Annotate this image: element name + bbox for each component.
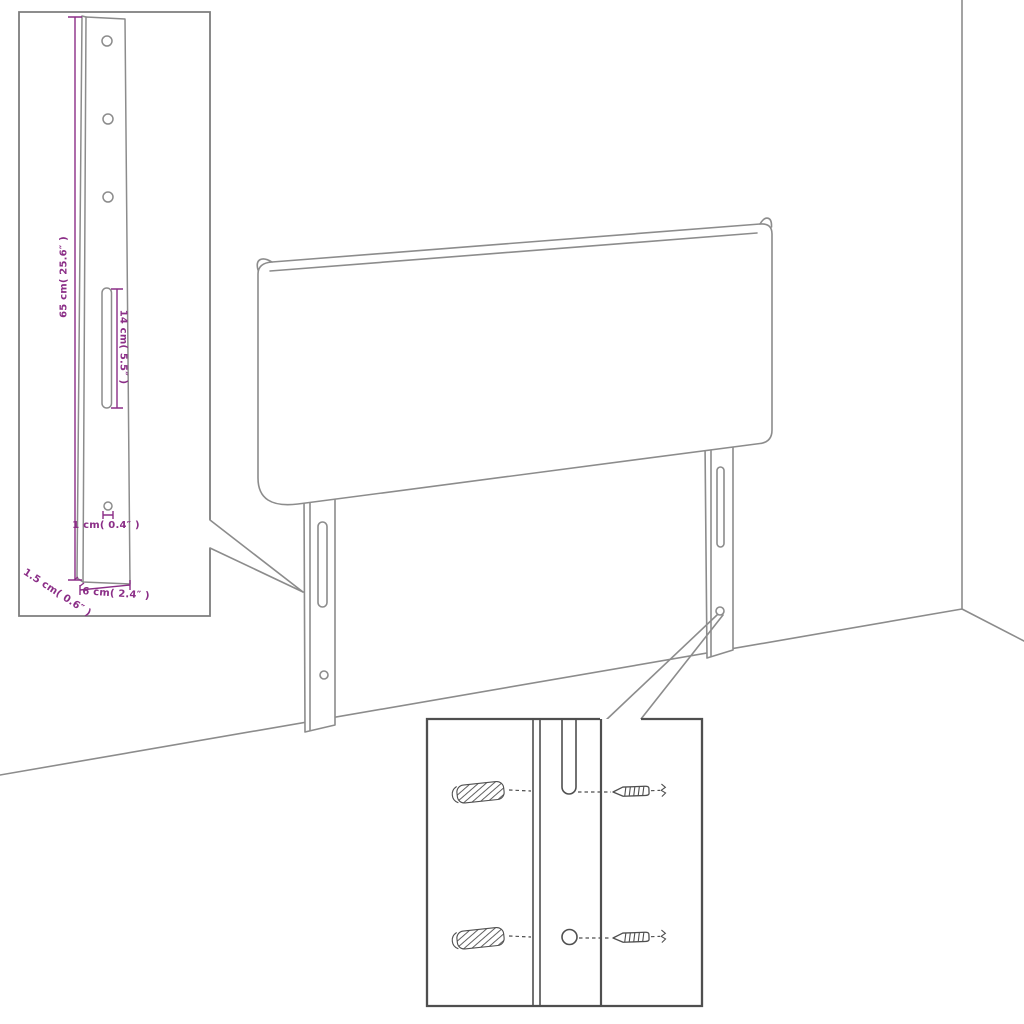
- right-leg-body: [705, 438, 733, 658]
- assembly-diagram-page: 65 cm( 25.6″ ) 14 cm( 5.5″ ) 1 cm( 0.4″ …: [0, 0, 1024, 1024]
- left-leg: [304, 491, 335, 732]
- inset-callout-wedge: [210, 520, 303, 592]
- hardware-detail-box: [427, 719, 702, 1006]
- dim-height-label: 65 cm( 25.6″ ): [59, 236, 70, 318]
- wedge-line-bottom: [210, 548, 303, 592]
- right-leg: [705, 438, 733, 658]
- bracket-drawing: [77, 16, 130, 584]
- headboard: [257, 218, 772, 505]
- floor-line-right: [962, 609, 1024, 641]
- headboard-assembly-diagram: 65 cm( 25.6″ ) 14 cm( 5.5″ ) 1 cm( 0.4″ …: [0, 0, 1024, 1024]
- bracket-front-face: [83, 17, 130, 584]
- dim-hole-label: 1 cm( 0.4″ ): [72, 520, 139, 531]
- hardware-detail-box-bg: [427, 719, 702, 1006]
- wedge-line-top: [210, 520, 303, 592]
- left-leg-body: [304, 491, 335, 732]
- dimension-inset-box: 65 cm( 25.6″ ) 14 cm( 5.5″ ) 1 cm( 0.4″ …: [19, 12, 210, 619]
- dim-slot-label: 14 cm( 5.5″ ): [118, 310, 129, 385]
- callout-line-2: [641, 615, 723, 719]
